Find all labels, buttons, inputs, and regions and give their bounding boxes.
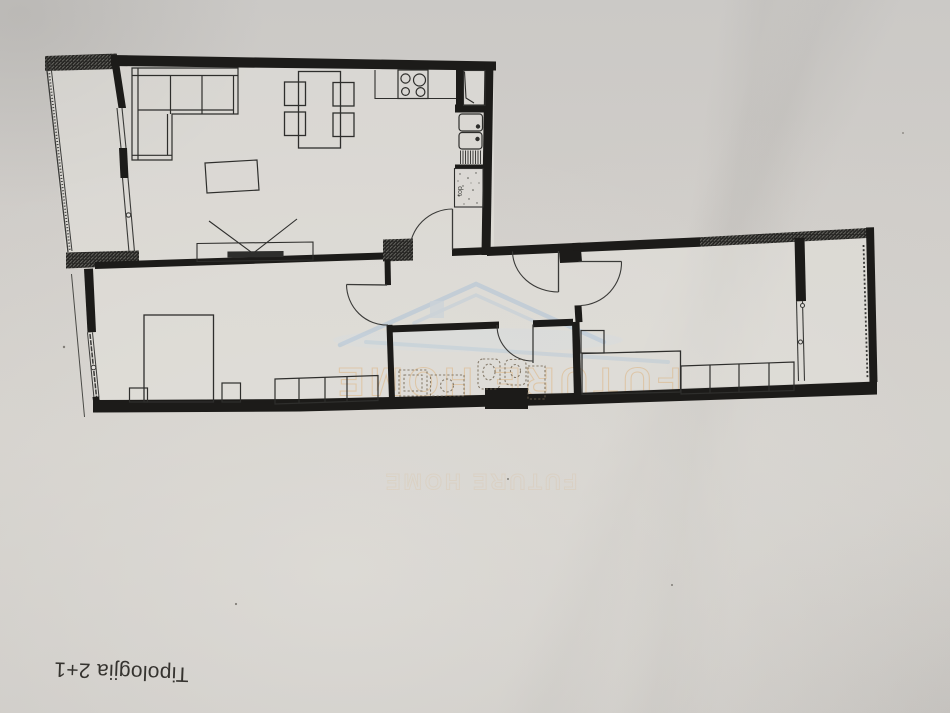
svg-text:top: top [457, 186, 464, 196]
svg-text:FUTURE HOME: FUTURE HOME [383, 469, 577, 494]
